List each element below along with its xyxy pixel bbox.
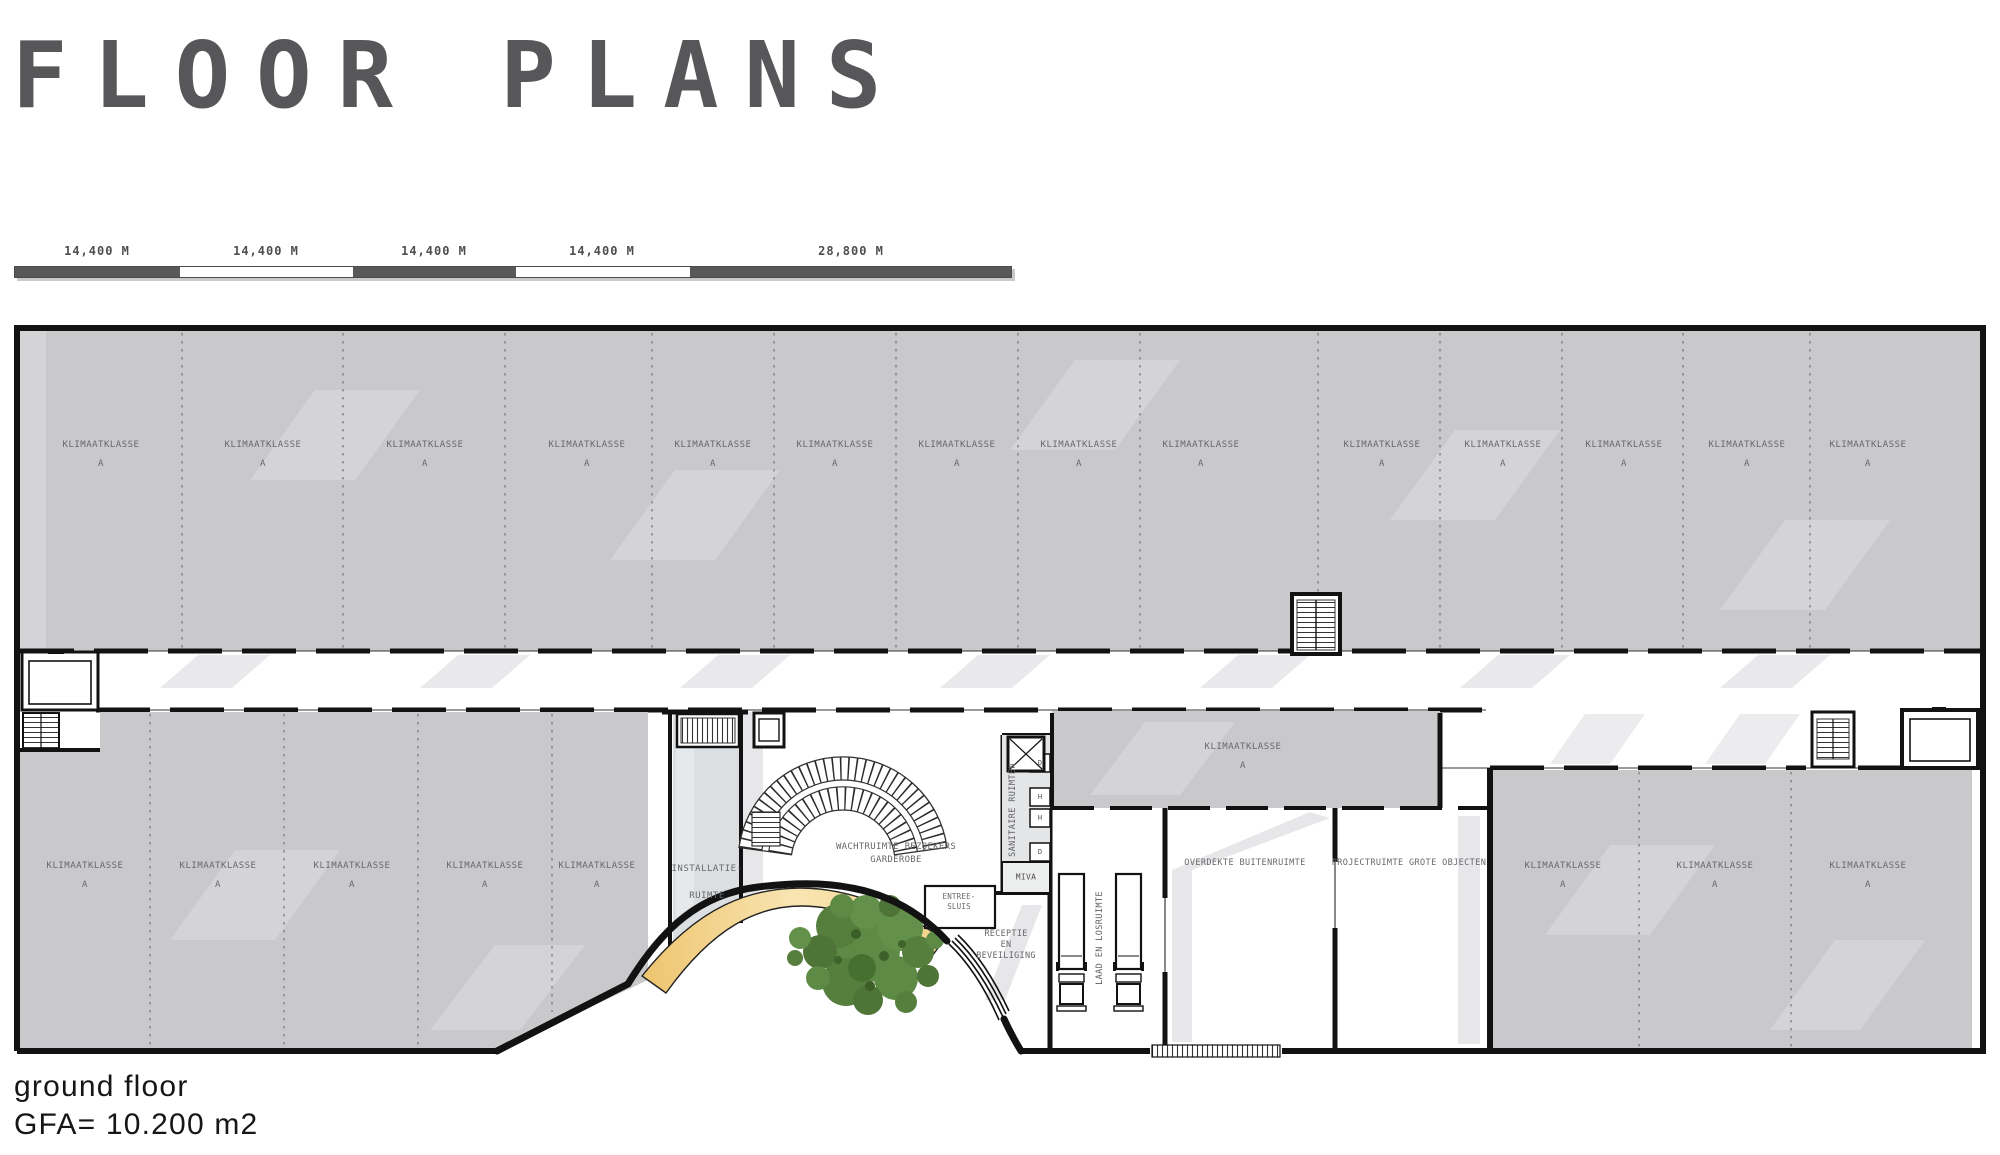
truck	[1113, 874, 1144, 1011]
right-elevator	[1902, 707, 1978, 768]
loading-gate	[1152, 1045, 1280, 1057]
room-label-entree-sluis: ENTREE-SLUIS	[942, 892, 975, 911]
scale-label: 14,400 M	[233, 244, 299, 258]
room-label-klimaatklasse: KLIMAATKLASSEA	[1041, 436, 1118, 474]
room-label-projectruimte: PROJECTRUIMTE GROTE OBJECTEN	[1332, 858, 1487, 868]
page-title: FLOOR PLANS	[12, 22, 907, 129]
plan-caption: ground floor GFA= 10.200 m2	[14, 1068, 258, 1144]
room-label-klimaatklasse: KLIMAATKLASSEA	[1465, 436, 1542, 474]
room-label-klimaatklasse: KLIMAATKLASSEA	[180, 857, 257, 895]
scale-label: 28,800 M	[818, 244, 884, 258]
room-label-klimaatklasse: KLIMAATKLASSEA	[1344, 436, 1421, 474]
wc-cell-label: D	[1038, 848, 1042, 856]
room-label-sanitaire: SANITAIRE RUIMTEN	[1008, 763, 1018, 857]
room-label-klimaatklasse: KLIMAATKLASSEA	[675, 436, 752, 474]
room-label-klimaatklasse: KLIMAATKLASSEA	[1709, 436, 1786, 474]
room-label-klimaatklasse: KLIMAATKLASSEA	[47, 857, 124, 895]
wc-cell-label: H	[1038, 814, 1042, 822]
top-storage-band	[20, 331, 1980, 651]
room-label-klimaatklasse: KLIMAATKLASSEA	[63, 436, 140, 474]
room-label-miva: MIVA	[1016, 873, 1036, 882]
room-label-klimaatklasse: KLIMAATKLASSEA	[1163, 436, 1240, 474]
top-staircase	[1292, 594, 1340, 654]
small-elevator	[754, 713, 784, 747]
truck	[1056, 874, 1087, 1011]
scale-bar-segment	[690, 267, 1011, 277]
caption-gfa: GFA= 10.200 m2	[14, 1106, 258, 1144]
room-label-klimaatklasse: KLIMAATKLASSEA	[1525, 857, 1602, 895]
scale-bar-segment	[15, 267, 180, 277]
room-label-klimaatklasse: KLIMAATKLASSEA	[797, 436, 874, 474]
room-label-klimaatklasse: KLIMAATKLASSEA	[1205, 738, 1282, 776]
room-label-klimaatklasse: KLIMAATKLASSEA	[1677, 857, 1754, 895]
caption-floor: ground floor	[14, 1068, 258, 1106]
left-staircase	[23, 713, 59, 749]
right-staircase	[1812, 712, 1854, 767]
scale-bar-segment	[516, 267, 690, 277]
room-label-klimaatklasse: KLIMAATKLASSEA	[387, 436, 464, 474]
floor-plans-page: FLOOR PLANS 14,400 M 14,400 M 14,400 M 1…	[0, 0, 2000, 1155]
scale-bar	[14, 266, 1012, 278]
scale-bar-segment	[353, 267, 516, 277]
wc-cell-label: D	[1038, 759, 1042, 767]
installatie-staircase	[677, 714, 739, 747]
room-label-overdekte-buitenruimte: OVERDEKTE BUITENRUIMTE	[1184, 858, 1305, 868]
wc-cell-label: H	[1038, 793, 1042, 801]
room-label-installatieruimte: INSTALLATIE-RUIMTE	[671, 856, 742, 910]
room-label-wachtruimte: WACHTRUIMTE BEZOEKERSGARDEROBE	[836, 841, 956, 867]
room-label-receptie: RECEPTIEENBEVEILIGING	[976, 929, 1036, 962]
room-label-klimaatklasse: KLIMAATKLASSEA	[919, 436, 996, 474]
room-label-laad-en-losruimte: LAAD EN LOSRUIMTE	[1095, 891, 1105, 985]
scale-label: 14,400 M	[64, 244, 130, 258]
scale-label: 14,400 M	[569, 244, 635, 258]
room-label-klimaatklasse: KLIMAATKLASSEA	[225, 436, 302, 474]
room-label-klimaatklasse: KLIMAATKLASSEA	[314, 857, 391, 895]
room-label-klimaatklasse: KLIMAATKLASSEA	[549, 436, 626, 474]
scale-bar-segment	[180, 267, 353, 277]
room-label-klimaatklasse: KLIMAATKLASSEA	[1586, 436, 1663, 474]
room-label-klimaatklasse: KLIMAATKLASSEA	[559, 857, 636, 895]
scale-label: 14,400 M	[401, 244, 467, 258]
left-elevator	[22, 649, 98, 710]
room-label-klimaatklasse: KLIMAATKLASSEA	[447, 857, 524, 895]
room-label-klimaatklasse: KLIMAATKLASSEA	[1830, 857, 1907, 895]
room-label-klimaatklasse: KLIMAATKLASSEA	[1830, 436, 1907, 474]
tree	[787, 894, 944, 1015]
bottom-right-storage-block	[1490, 770, 1972, 1051]
